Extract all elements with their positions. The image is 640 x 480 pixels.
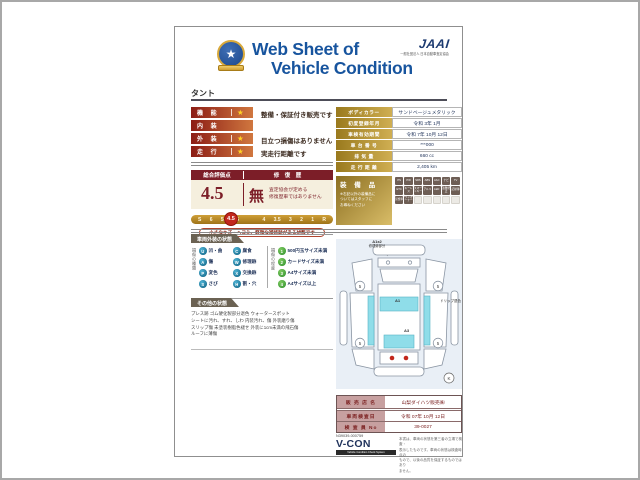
- equipment-badge: ワンオーナー: [404, 196, 412, 204]
- rating-text: 実走行距離です: [261, 148, 307, 158]
- page-background: ★ Web Sheet of Vehicle Condition JAAI 一般…: [0, 0, 640, 480]
- info-value: ***000: [392, 140, 462, 150]
- rating-label: 機 能: [197, 108, 229, 117]
- damage-extent-label: A4サイズ未満: [288, 270, 317, 276]
- damage-extent-item: 2 カードサイズ未満: [278, 257, 324, 267]
- rating-label: 走 行: [197, 147, 229, 156]
- dealer-row-inspector-no: 検 査 員 No 39-0027: [337, 421, 461, 432]
- damage-type-item: H 割・穴: [233, 279, 256, 289]
- dealer-value: 山梨ダイハツ販売㈱: [385, 396, 461, 408]
- equipment-note-line3: お尋ねください: [340, 203, 388, 208]
- dealer-label: 検 査 員 No: [337, 422, 385, 432]
- extent-code-icon: 4: [278, 280, 286, 288]
- condition-sheet: ★ Web Sheet of Vehicle Condition JAAI 一般…: [174, 26, 463, 457]
- extent-code-icon: 2: [278, 258, 286, 266]
- equipment-badge: ETC: [395, 186, 403, 194]
- disclaimer-line: もので、以後の品質を保証するものではあり: [399, 458, 463, 469]
- scale-item: 4: [263, 217, 266, 223]
- scale-item: R: [322, 217, 326, 223]
- damage-code-icon: C: [233, 247, 241, 255]
- damage-type-title: 損傷の種類: [191, 248, 197, 290]
- info-row-displacement: 排 気 量 660 cc: [336, 151, 462, 161]
- equipment-empty-slot: [423, 196, 431, 204]
- damage-type-label: 腐食: [243, 248, 252, 254]
- selected-score-marker: 4.5: [224, 212, 238, 226]
- vcon-logo-subtitle: Vehicle Condition Check System: [336, 450, 396, 455]
- equipment-badge: SRS: [414, 177, 422, 185]
- damage-type-item: A 傷: [199, 257, 213, 267]
- info-row-inspection-valid: 車検有効期間 令和 7年 10月 12日: [336, 129, 462, 139]
- equipment-badge: PS: [395, 177, 403, 185]
- star-icon: ★: [231, 148, 244, 156]
- damage-code-icon: W: [233, 258, 241, 266]
- info-value: 2,405 km: [392, 162, 462, 172]
- equipment-badge: AAC: [433, 177, 441, 185]
- info-label: 排 気 量: [336, 151, 392, 161]
- info-value: サンドベージュメタリック: [392, 107, 462, 117]
- damage-type-item: C 腐食: [233, 246, 252, 256]
- damage-type-label: さび: [209, 281, 218, 287]
- windshield: [380, 269, 418, 282]
- info-label: ボディカラー: [336, 107, 392, 117]
- damage-code-icon: X: [233, 269, 241, 277]
- model-underline: [191, 99, 447, 101]
- damage-type-label: 割・穴: [243, 281, 257, 287]
- dealer-label: 販 売 店 名: [337, 396, 385, 408]
- dealer-value: 39-0027: [385, 422, 461, 432]
- repair-note-line2: 修復歴車ではありません: [269, 195, 322, 202]
- damage-type-label: 変色: [209, 270, 218, 276]
- jaai-subtitle: 一般社団法人 日本自動車査定協会: [400, 51, 449, 56]
- equipment-empty-slot: [414, 196, 422, 204]
- corner-marker: K: [444, 373, 454, 383]
- sheet-title-line1: Web Sheet of: [252, 39, 359, 60]
- section-header-other: その他の状態: [191, 298, 239, 307]
- vcon-logo: V-CON: [336, 438, 371, 450]
- emblem-ribbon: [218, 65, 244, 71]
- car-top-view: 5 5 5 5 K: [336, 239, 462, 389]
- equipment-empty-slot: [442, 196, 450, 204]
- equipment-badge: スマートキー: [414, 186, 422, 194]
- dealer-label: 車両検査日: [337, 411, 385, 421]
- damage-type-label: 傷: [209, 259, 214, 265]
- disclaimer-line: 本書は、車両の状態を第三者の立場で検査・: [399, 437, 463, 448]
- info-row-body-color: ボディカラー サンドベージュメタリック: [336, 107, 462, 117]
- section-header-exterior: 車両外装の状態: [191, 234, 244, 243]
- score-scale-bar: S 6 5.5 5 4.5 4 3.5 3 2 1 R: [191, 215, 333, 224]
- roof-damage-mark: A1: [395, 298, 400, 303]
- damage-code-icon: H: [233, 280, 241, 288]
- separator: [191, 162, 333, 166]
- repair-note-line1: 査定協会が定める: [269, 188, 322, 195]
- equipment-title: 装 備 品: [340, 179, 388, 189]
- damage-dot: [404, 356, 409, 361]
- damage-type-item: U 凹・曲: [199, 246, 222, 256]
- scale-item: S: [198, 217, 201, 223]
- equipment-empty-slot: [451, 196, 459, 204]
- other-condition-text: プレス跡 ゴム硬化製部分退色 ウォータースポット シートに汚れ、すれ、しわ 内装…: [191, 311, 298, 338]
- side-damage-note: ドリップ退色: [440, 299, 461, 304]
- info-value: 660 cc: [392, 151, 462, 161]
- equipment-section: 装 備 品 ※右記以外の装備品に ついてはスタッフに お尋ねください PS PW…: [336, 176, 462, 225]
- car-damage-diagram: 5 5 5 5 K A1x2 修理跡部分 ドリップ退色 A1 A3: [336, 239, 462, 389]
- tailgate: [380, 352, 418, 364]
- left-door-window: [368, 296, 374, 345]
- info-label: 初度登録年月: [336, 118, 392, 128]
- equipment-badge: 禁煙車: [395, 196, 403, 204]
- rear-bumper: [374, 367, 424, 376]
- damage-extent-label: カードサイズ未満: [288, 259, 325, 265]
- star-icon: ★: [226, 48, 237, 60]
- washer-nozzle: [408, 261, 411, 264]
- info-value: 令和 3年 1月: [392, 118, 462, 128]
- other-line: プレス跡 ゴム硬化製部分退色 ウォータースポット: [191, 311, 298, 318]
- rating-text: 目立つ損傷はありません: [261, 135, 332, 145]
- extent-code-icon: 3: [278, 269, 286, 277]
- washer-nozzle: [386, 261, 389, 264]
- damage-extent-title: 損傷の程度: [270, 248, 276, 290]
- scale-item: 1: [311, 217, 314, 223]
- rating-label: 外 装: [197, 134, 229, 143]
- equipment-badge: 盗難防止: [442, 186, 450, 194]
- star-icon: ★: [231, 135, 244, 143]
- right-door-window: [424, 296, 430, 345]
- star-icon: ★: [231, 109, 244, 117]
- disclaimer-line: 表示したものです。車両の状態は検査時点の: [399, 448, 463, 459]
- repair-history-header: 修 復 歴: [243, 171, 333, 179]
- damage-code-icon: A: [199, 258, 207, 266]
- info-row-mileage: 走 行 距 離 2,405 km: [336, 162, 462, 172]
- damage-code-icon: P: [199, 269, 207, 277]
- left-rear-quarter: [352, 349, 374, 369]
- damage-code-icon: U: [199, 247, 207, 255]
- right-rear-quarter: [424, 349, 446, 369]
- front-note-text: 修理跡部分: [354, 245, 400, 249]
- damage-extent-label: A4サイズ以上: [288, 281, 317, 287]
- rating-label: 内 装: [197, 121, 229, 130]
- damage-extent-item: 4 A4サイズ以上: [278, 279, 316, 289]
- jaai-emblem-icon: ★: [215, 40, 247, 78]
- rear-glass-panel: [384, 335, 414, 348]
- equipment-badge: ナビ: [442, 177, 450, 185]
- jaai-logo: JAAI: [418, 37, 450, 51]
- overall-score: 4.5: [201, 183, 224, 204]
- front-damage-note: A1x2 修理跡部分: [354, 240, 400, 249]
- info-value: 令和 7年 10月 12日: [392, 129, 462, 139]
- dealer-table: 販 売 店 名 山梨ダイハツ販売㈱ 車両検査日 令和 07年 10月 12日 検…: [336, 395, 462, 433]
- divider: [267, 246, 268, 288]
- info-row-first-registration: 初度登録年月 令和 3年 1月: [336, 118, 462, 128]
- equipment-badge: アルミ: [423, 186, 431, 194]
- damage-type-item: S さび: [199, 279, 218, 289]
- rating-text: 整備・保証付き販売です: [261, 109, 333, 119]
- info-label: 車検有効期間: [336, 129, 392, 139]
- damage-code-icon: S: [199, 280, 207, 288]
- equipment-empty-slot: [433, 196, 441, 204]
- separator: [191, 349, 333, 350]
- sheet-title-line2: Vehicle Condition: [271, 58, 413, 79]
- damage-type-label: 修理跡: [243, 259, 257, 265]
- info-label: 走 行 距 離: [336, 162, 392, 172]
- damage-extent-item: 3 A4サイズ未満: [278, 268, 316, 278]
- info-row-chassis-number: 車 台 番 号 ***000: [336, 140, 462, 150]
- other-line: シートに汚れ、すれ、しわ 内装汚れ、傷 外装磨り傷: [191, 318, 298, 325]
- equipment-badge: PW: [404, 177, 412, 185]
- equipment-badge: 記録簿: [451, 186, 459, 194]
- info-label: 車 台 番 号: [336, 140, 392, 150]
- scale-item: 2: [300, 217, 303, 223]
- damage-type-label: 凹・曲: [209, 248, 223, 254]
- model-name: タント: [191, 88, 215, 99]
- disclaimer-text: 本書は、車両の状態を第三者の立場で検査・ 表示したものです。車両の状態は検査時点…: [399, 437, 463, 474]
- disclaimer-line: ません。: [399, 469, 463, 474]
- damage-type-item: W 修理跡: [233, 257, 256, 267]
- equipment-badge: ABS: [423, 177, 431, 185]
- equipment-title-box: 装 備 品 ※右記以外の装備品に ついてはスタッフに お尋ねください: [336, 176, 392, 225]
- left-rocker-panel: [340, 291, 347, 345]
- divider: [243, 183, 244, 206]
- separator: [191, 229, 447, 233]
- corner-mark: K: [447, 376, 450, 381]
- damage-extent-item: 1 500円玉サイズ未満: [278, 246, 327, 256]
- scale-item: 6: [210, 217, 213, 223]
- dealer-value: 令和 07年 10月 12日: [385, 411, 461, 421]
- evaluation-box: 総合評価点 修 復 歴 4.5 無 査定協会が定める 修復歴車ではありません: [191, 170, 333, 209]
- other-line: ルーフに薄傷: [191, 331, 298, 338]
- dealer-row-inspection-date: 車両検査日 令和 07年 10月 12日: [337, 410, 461, 421]
- scale-item: 3.5: [274, 217, 281, 223]
- equipment-badge: TV: [451, 177, 459, 185]
- equipment-badge: キーレス: [404, 186, 412, 194]
- dealer-row-shop: 販 売 店 名 山梨ダイハツ販売㈱: [337, 396, 461, 408]
- damage-type-label: 交換跡: [243, 270, 257, 276]
- equipment-grid: PS PW SRS ABS AAC ナビ TV ETC キーレス スマートキー …: [395, 177, 462, 204]
- scale-item: 3: [289, 217, 292, 223]
- rear-damage-mark: A3: [404, 328, 409, 333]
- repair-history-value: 無: [249, 185, 264, 206]
- damage-type-item: X 交換跡: [233, 268, 256, 278]
- damage-extent-label: 500円玉サイズ未満: [288, 248, 328, 254]
- equipment-badge: LED: [433, 186, 441, 194]
- damage-dot: [390, 356, 395, 361]
- score-header: 総合評価点: [191, 171, 243, 179]
- extent-code-icon: 1: [278, 247, 286, 255]
- hood-cowl: [378, 258, 420, 267]
- damage-type-item: P 変色: [199, 268, 218, 278]
